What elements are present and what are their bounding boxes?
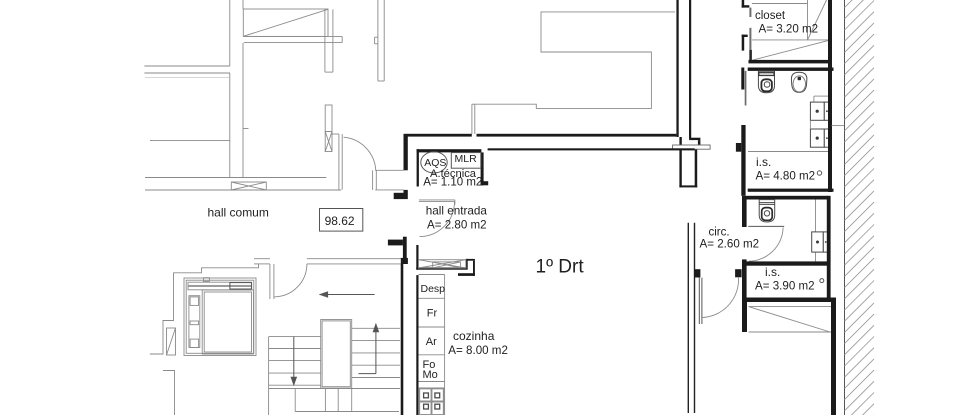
svg-text:A= 1.10 m2: A= 1.10 m2 [423,176,482,188]
svg-text:closet: closet [755,10,786,22]
svg-text:A= 4.80 m2: A= 4.80 m2 [756,170,816,183]
svg-text:MLR: MLR [455,153,478,165]
svg-text:A= 2.60 m2: A= 2.60 m2 [700,238,760,251]
svg-text:circ.: circ. [709,227,730,239]
svg-text:A= 2.80 m2: A= 2.80 m2 [427,218,487,231]
svg-text:hall comum: hall comum [208,206,269,220]
svg-text:Mo: Mo [423,369,438,381]
svg-text:A= 3.20 m2: A= 3.20 m2 [759,23,819,36]
svg-text:i.s.: i.s. [765,265,780,279]
svg-text:hall entrada: hall entrada [426,205,488,218]
svg-text:98.62: 98.62 [325,214,355,228]
svg-text:Desp: Desp [421,283,446,295]
svg-text:i.s.: i.s. [756,155,771,169]
svg-text:A= 8.00 m2: A= 8.00 m2 [448,344,508,357]
svg-text:1º Drt: 1º Drt [536,257,585,278]
svg-text:A= 3.90 m2: A= 3.90 m2 [755,280,815,293]
svg-text:cozinha: cozinha [453,329,495,343]
svg-text:Ar: Ar [426,336,437,348]
svg-text:Fr: Fr [427,308,438,320]
